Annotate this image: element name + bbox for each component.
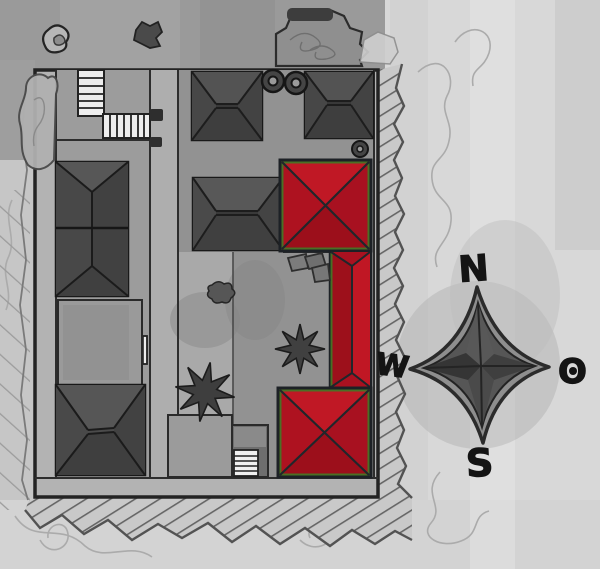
wash-top-patch: [60, 0, 180, 68]
compass-north-label: N: [457, 248, 491, 291]
east-pavilion-south: [278, 388, 371, 477]
wash-top-patch-2: [200, 0, 275, 68]
building-south-west-annex: [58, 300, 142, 385]
east-pavilion-north: [280, 160, 371, 251]
building-north-west-roof: [192, 72, 262, 140]
bush-icon-courtyard: [208, 282, 235, 303]
courtyard-shadow-2: [225, 260, 285, 340]
round-structure-2-center: [292, 79, 301, 88]
hand-drawn-map-page: N S W O: [0, 0, 600, 569]
tree-icon-2: [275, 324, 325, 374]
stairs-south: [234, 450, 258, 476]
building-south-west-roof: [56, 385, 145, 475]
round-structure-1-center: [269, 77, 278, 86]
wash-stripe-2: [555, 0, 600, 250]
site-map-canvas: N S W O: [0, 0, 600, 569]
east-label-dot: [569, 367, 577, 375]
building-south-annex: [168, 415, 268, 477]
round-structure-3-center: [357, 146, 363, 152]
rock-top-left-icon: [43, 25, 68, 52]
compass-west-label: W: [373, 347, 412, 386]
stairs-northwest-horizontal: [103, 114, 150, 138]
east-gallery-wing: [330, 251, 371, 388]
building-west-long-hall: [56, 162, 128, 296]
compass-south-label: S: [465, 440, 496, 485]
stairs-northwest-vertical: [78, 70, 104, 116]
dark-bar-icon: [287, 8, 333, 21]
building-north-east-roof: [305, 72, 373, 138]
building-central-hall: [193, 178, 283, 250]
